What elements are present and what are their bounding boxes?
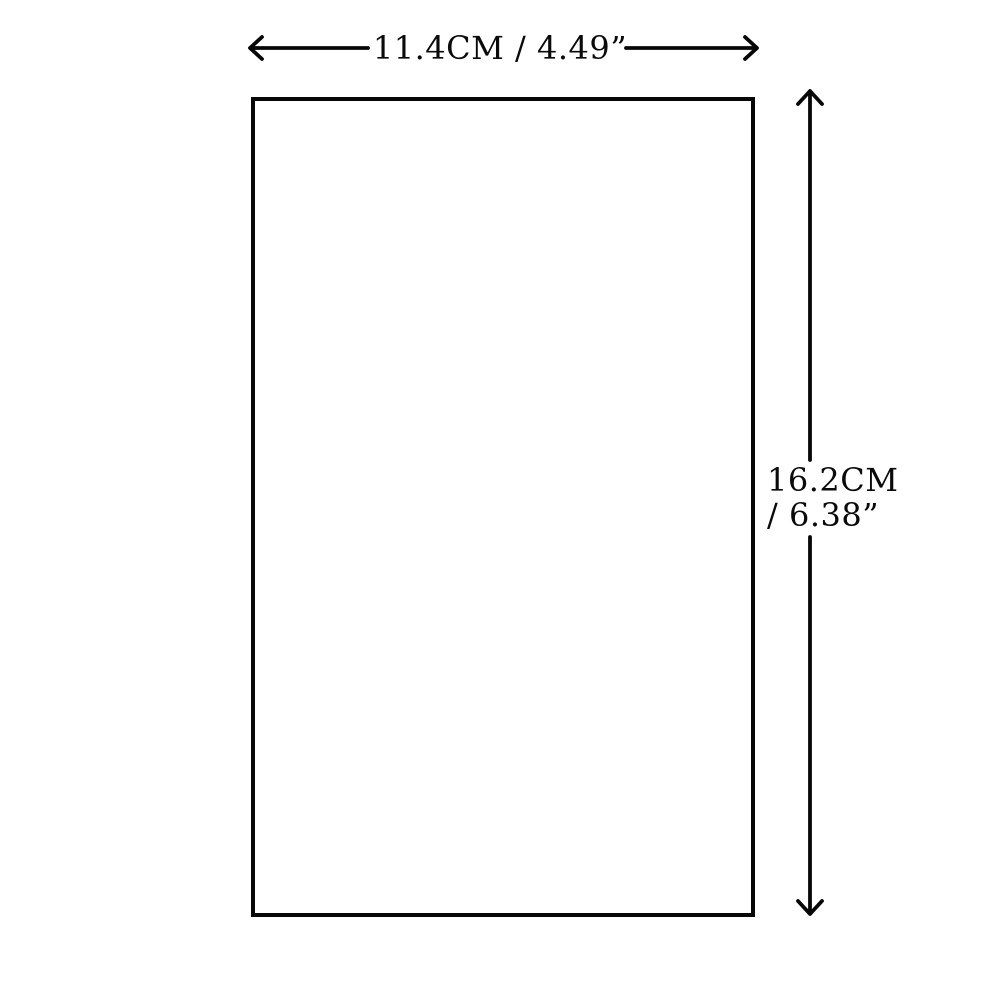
arrowhead-down-icon <box>798 901 822 914</box>
product-outline-rectangle <box>251 97 755 917</box>
width-dimension-label: 11.4CM / 4.49” <box>355 30 645 66</box>
dimension-diagram: 11.4CM / 4.49” 16.2CM / 6.38” <box>0 0 1000 1000</box>
height-dimension-label-line1: 16.2CM <box>767 463 899 498</box>
arrowhead-left-icon <box>250 37 262 59</box>
height-dimension-label: 16.2CM / 6.38” <box>767 463 899 533</box>
arrowhead-up-icon <box>798 91 822 104</box>
arrowhead-right-icon <box>745 37 757 59</box>
height-dimension-label-line2: / 6.38” <box>767 498 899 533</box>
